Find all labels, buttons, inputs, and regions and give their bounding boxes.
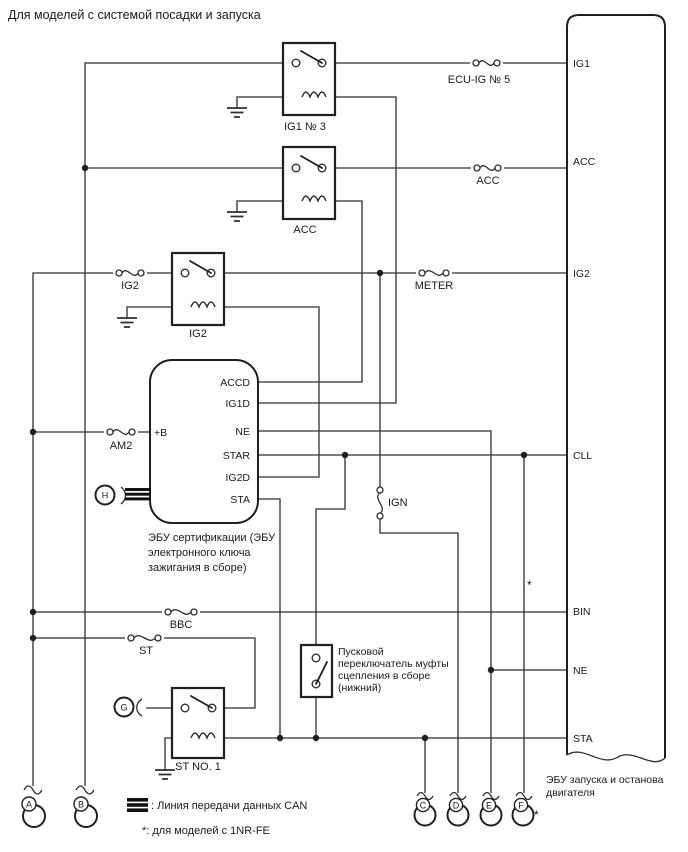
fuse-st-label: ST: [139, 645, 153, 657]
fuse-ecu-ig-label: ECU-IG № 5: [448, 74, 511, 86]
engine-ecu-wavy-edge: [567, 752, 665, 762]
wire-ig1coil-to-ig1d: [258, 97, 396, 403]
fuse-meter-label: METER: [415, 280, 454, 292]
engine-pin-ne: NE: [573, 665, 588, 677]
legend-can-icon: [127, 798, 148, 802]
page-title: Для моделей с системой посадки и запуска: [8, 8, 261, 22]
connector-c: C: [415, 793, 436, 826]
relay-st-box: [172, 688, 224, 758]
fuse-st: [125, 630, 164, 646]
clutch-start-switch: [301, 645, 332, 697]
wire-ig2-ground: [127, 307, 172, 318]
wire-ign-to-d: [380, 519, 458, 793]
engine-ecu-caption-2: двигателя: [546, 787, 595, 799]
connector-h-label: H: [102, 491, 109, 501]
cert-pin-ig1d: IG1D: [225, 398, 250, 410]
connector-h: H: [96, 486, 152, 505]
fuse-ign: [377, 487, 383, 519]
cert-pin-ig2d: IG2D: [225, 472, 250, 484]
fuse-am2: [104, 424, 138, 440]
connector-f: F: [513, 793, 534, 826]
connector-d-label: D: [453, 801, 460, 811]
relay-acc: [283, 147, 335, 219]
engine-pin-bin: BIN: [573, 606, 591, 618]
fuse-ig2: [113, 265, 147, 281]
relay-acc-pin-left: [292, 164, 300, 172]
relay-ig2-pin-left: [181, 269, 189, 277]
cert-pin-sta: STA: [230, 494, 250, 506]
engine-pin-acc: ACC: [573, 156, 596, 168]
legend-can-label: : Линия передачи данных CAN: [151, 800, 307, 812]
fuse-acc: [471, 160, 504, 176]
engine-ecu-caption-1: ЭБУ запуска и останова: [546, 774, 664, 786]
fuse-ign-label: IGN: [388, 497, 408, 509]
clutch-switch-pin-top: [312, 654, 320, 662]
engine-pin-sta: STA: [573, 733, 593, 745]
wire-ig1-ground: [237, 97, 283, 108]
can-bus-icon: [125, 488, 151, 491]
fuse-ecu-ig: [470, 55, 503, 71]
relay-st-label: ST NO. 1: [175, 761, 221, 773]
cert-pin-star: STAR: [223, 450, 251, 462]
clutch-caption-4: (нижний): [338, 682, 381, 694]
wire-acc-ground: [237, 201, 283, 212]
relay-ig1-label: IG1 № 3: [284, 121, 326, 133]
legend-note: *: для моделей с 1NR-FE: [142, 825, 270, 837]
g-break-arc: [137, 699, 142, 716]
connector-b-label: B: [78, 800, 84, 810]
legend: : Линия передачи данных CAN *: для модел…: [127, 798, 307, 837]
engine-ecu-box: [567, 15, 665, 762]
relay-ig2-label: IG2: [189, 328, 207, 340]
wire-star-clutch: [316, 455, 345, 654]
ground-ig1-icon: [227, 108, 247, 117]
fuse-acc-label: ACC: [476, 175, 499, 187]
clutch-switch-box: [301, 645, 332, 697]
wiring-diagram-page: H G A B C D E: [0, 0, 688, 852]
ground-st-icon: [155, 770, 175, 779]
relay-ig2-box: [172, 253, 224, 325]
engine-pin-ig1: IG1: [573, 58, 590, 70]
ground-ig2-icon: [117, 318, 137, 327]
relay-acc-label: ACC: [293, 224, 316, 236]
cert-ecu-caption-1: ЭБУ сертификации (ЭБУ: [148, 532, 276, 544]
connector-c-label: C: [420, 801, 427, 811]
cert-pin-ne: NE: [235, 426, 250, 438]
fuse-ig2-label: IG2: [121, 280, 139, 292]
cert-pin-accd: ACCD: [220, 377, 250, 389]
cert-ecu-caption-2: электронного ключа: [148, 547, 251, 559]
wiring-diagram: H G A B C D E: [0, 0, 688, 852]
engine-pin-cll: CLL: [573, 450, 592, 462]
connector-f-label: F: [518, 801, 524, 811]
relay-st: [172, 688, 224, 758]
cert-ecu-caption-3: зажигания в сборе): [148, 562, 247, 574]
junction-dots: [30, 165, 527, 741]
relay-st-pin-left: [181, 704, 189, 712]
relay-ig1-pin-left: [292, 59, 300, 67]
clutch-caption-1: Пусковой: [338, 646, 384, 658]
connector-a-label: A: [26, 800, 32, 810]
asterisk-connector-f: *: [534, 808, 539, 822]
relay-ig1-box: [283, 43, 335, 115]
clutch-caption-2: переключатель муфты: [338, 658, 449, 670]
clutch-caption-3: сцепления в сборе: [338, 670, 430, 682]
connector-e: E: [481, 793, 502, 826]
fuse-am2-label: AM2: [110, 440, 133, 452]
connector-g: G: [115, 698, 143, 717]
connector-d: D: [448, 793, 469, 826]
connector-g-label: G: [120, 703, 127, 713]
fuse-bbc-label: BBC: [170, 619, 193, 631]
connector-b: B: [74, 786, 97, 827]
relay-ig1: [283, 43, 335, 115]
asterisk-cll-wire: *: [527, 578, 532, 592]
connector-a: A: [22, 786, 45, 827]
wire-bus-a-ig2: [33, 273, 567, 786]
relay-ig2: [172, 253, 224, 325]
engine-pin-ig2: IG2: [573, 268, 590, 280]
ground-acc-icon: [227, 212, 247, 221]
relay-acc-box: [283, 147, 335, 219]
fuse-meter: [416, 265, 452, 281]
can-break-arc: [121, 487, 126, 504]
connector-e-label: E: [486, 801, 492, 811]
fuse-bbc: [162, 604, 200, 620]
cert-pin-plus-b: +B: [154, 427, 167, 439]
